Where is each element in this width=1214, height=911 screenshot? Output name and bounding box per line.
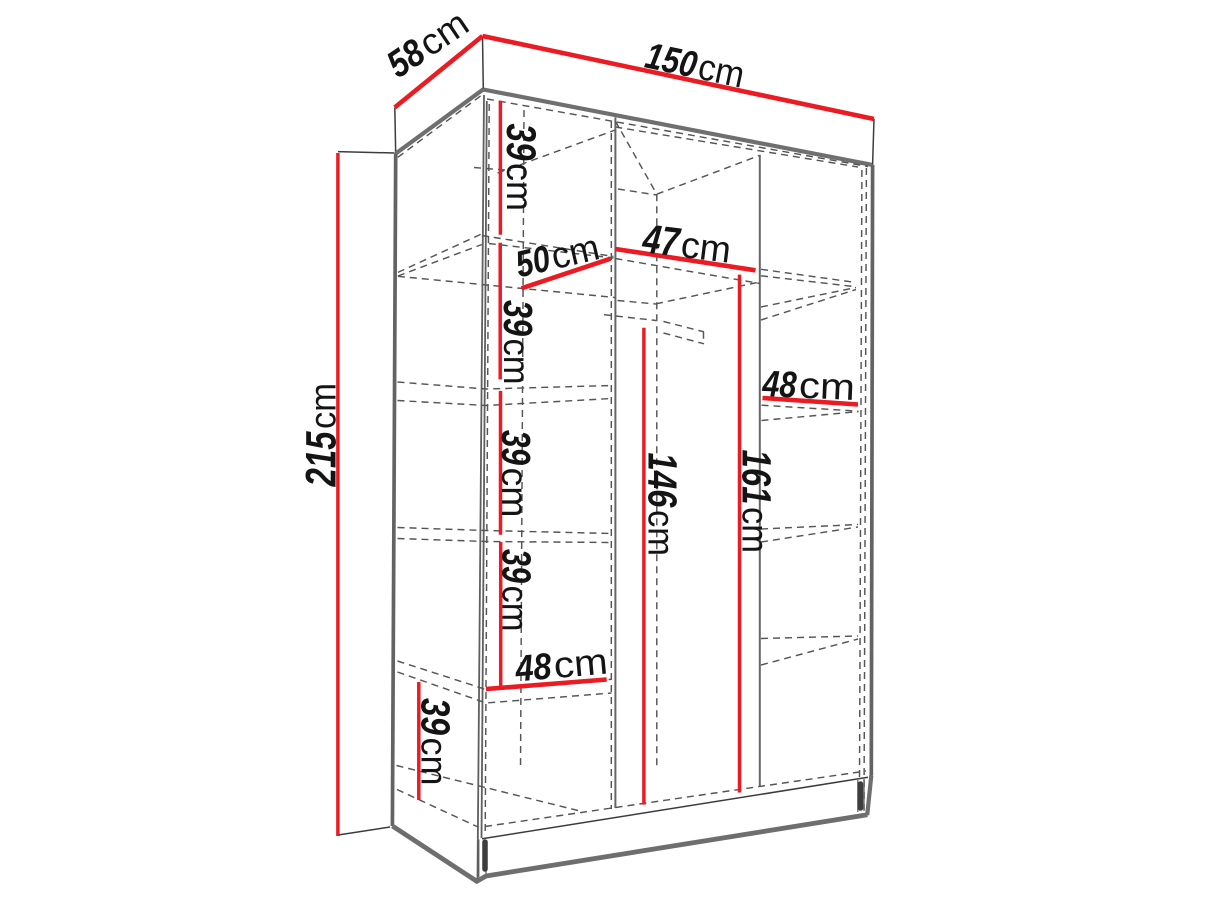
svg-text:47cm: 47cm xyxy=(640,215,734,272)
svg-text:39cm: 39cm xyxy=(494,549,540,632)
svg-text:161cm: 161cm xyxy=(734,450,780,554)
svg-text:39cm: 39cm xyxy=(498,124,545,212)
svg-text:48cm: 48cm xyxy=(513,641,610,690)
svg-text:39cm: 39cm xyxy=(413,698,459,786)
svg-text:39cm: 39cm xyxy=(495,300,541,385)
svg-text:39cm: 39cm xyxy=(493,430,539,518)
svg-text:50cm: 50cm xyxy=(512,226,604,285)
svg-text:48cm: 48cm xyxy=(761,363,856,408)
svg-text:58cm: 58cm xyxy=(380,2,477,86)
svg-text:146cm: 146cm xyxy=(640,453,686,557)
svg-text:150cm: 150cm xyxy=(642,35,748,96)
svg-text:215cm: 215cm xyxy=(298,383,346,487)
